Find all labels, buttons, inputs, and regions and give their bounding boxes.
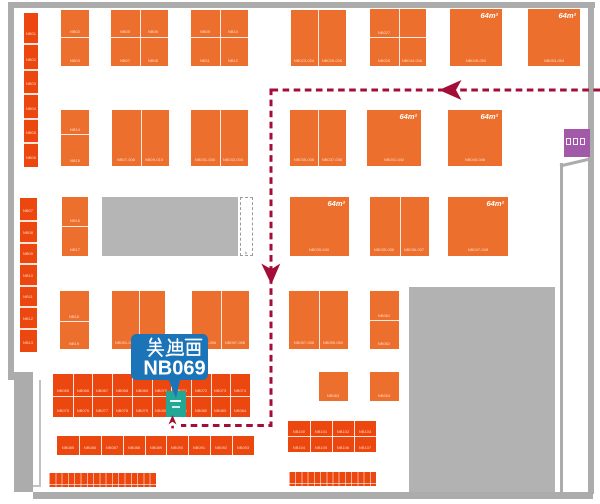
svg-text:NB069: NB069 — [143, 358, 205, 380]
